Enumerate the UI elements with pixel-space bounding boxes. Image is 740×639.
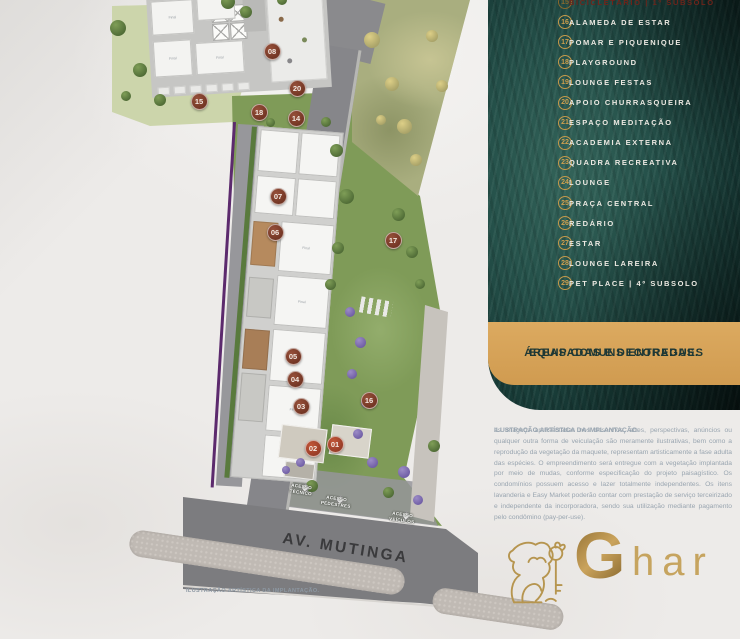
unit-footprint: Final [273,275,330,329]
flowering-tree [355,337,366,348]
legend-label: LOUNGE [569,178,611,187]
tree [332,242,344,254]
plan-marker-07: 07 [270,188,287,205]
tree [240,6,252,18]
logo-letters-har: har [632,542,714,582]
tree [133,63,147,77]
plan-marker-02: 02 [305,440,322,457]
amenity-patch [242,329,270,371]
plan-marker-18: 18 [251,104,268,121]
legend-item-24: 24LOUNGE [488,173,740,193]
unit-footprint [295,178,337,219]
legend-label: REDÁRIO [569,219,615,228]
amenity-patch [238,372,267,422]
flowering-tree [367,457,378,468]
legend-item-18: 18PLAYGROUND [488,52,740,72]
tree [383,487,394,498]
legend-label: ALAMEDA DE ESTAR [569,18,671,27]
logo-letter-g: G [574,522,625,588]
balcony [174,86,186,95]
legend-item-16: 16ALAMEDA DE ESTAR [488,12,740,32]
furniture-dot [302,37,307,42]
plan-marker-16: 16 [361,392,378,409]
legend-label: PLAYGROUND [569,58,638,67]
legend-label: LOUNGE FESTAS [569,78,653,87]
tree [364,32,380,48]
amenity-patch [246,277,274,319]
legend-label: PRAÇA CENTRAL [569,199,654,208]
legend-item-26: 26REDÁRIO [488,213,740,233]
legend-item-20: 20APOIO CHURRASQUEIRA [488,93,740,113]
unit-footprint: Final [278,221,335,275]
plan-marker-06: 06 [267,224,284,241]
amenity-floor [266,0,327,82]
balcony [221,83,233,92]
tree [110,20,126,36]
plan-marker-03: 03 [293,398,310,415]
tree [436,80,448,92]
legend-item-29: 29PET PLACE | 4º SUBSOLO [488,273,740,293]
furniture-dot [287,58,292,63]
flowering-tree [347,369,357,379]
flowering-tree [296,458,305,467]
plan-marker-08: 08 [264,43,281,60]
tree [392,208,405,221]
balcony [206,84,218,93]
legend-item-23: 23QUADRA RECREATIVA [488,153,740,173]
flowering-tree [353,429,363,439]
legend-label: ESPAÇO MEDITAÇÃO [569,118,673,127]
legend-label: APOIO CHURRASQUEIRA [569,98,692,107]
tree [426,30,438,42]
flowering-tree [282,466,290,474]
tree [266,118,275,127]
tree [339,189,354,204]
legend-item-22: 22ACADEMIA EXTERNA [488,133,740,153]
legend-label: PET PLACE | 4º SUBSOLO [569,279,699,288]
tree [121,91,131,101]
legend-label: BICICLETÁRIO | 1º SUBSOLO [569,0,715,7]
plan-marker-20: 20 [289,80,306,97]
tree [376,115,386,125]
legend-item-17: 17POMAR E PIQUENIQUE [488,32,740,52]
disclaimer-body: as imagens apresentadas nos desenhos, ar… [494,426,732,524]
tree [410,154,422,166]
legend-item-19: 19LOUNGE FESTAS [488,72,740,92]
balcony [237,82,249,91]
elevator-cell [212,23,230,41]
legend-item-25: 25PRAÇA CENTRAL [488,193,740,213]
legend-label: QUADRA RECREATIVA [569,158,679,167]
flowering-tree [413,495,423,505]
tree [154,94,166,106]
implantation-poster: FinalFinalFinalFinalFinal FinalFinalFina… [0,0,740,639]
tree [385,77,399,91]
legend-item-28: 28LOUNGE LAREIRA [488,253,740,273]
legend-label: ESTAR [569,239,602,248]
tree [321,117,331,127]
plan-marker-17: 17 [385,232,402,249]
legend-label: POMAR E PIQUENIQUE [569,38,682,47]
flowering-tree [398,466,410,478]
tree [397,119,412,134]
delivery-banner: ÁREAS COMUNS ENTREGUES EQUIPADAS E DECOR… [488,322,740,385]
brand-logo: G har [498,520,728,630]
plan-marker-04: 04 [287,371,304,388]
tree [406,246,418,258]
plan-marker-14: 14 [288,110,305,127]
tree [415,279,425,289]
plan-caption: ILUSTRAÇÃO ARTÍSTICA DA IMPLANTAÇÃO. [186,588,319,594]
tree [330,144,343,157]
plan-marker-05: 05 [285,348,302,365]
unit-footprint: Final [150,0,194,36]
tree [325,279,336,290]
legend-item-21: 21ESPAÇO MEDITAÇÃO [488,113,740,133]
unit-footprint [257,129,299,174]
legend-item-15: 15BICICLETÁRIO | 1º SUBSOLO [488,0,740,12]
flowering-tree [345,307,355,317]
banner-line2: EQUIPADAS E DECORADAS. [529,345,699,362]
unit-footprint: Final [195,40,245,75]
legend-item-27: 27ESTAR [488,233,740,253]
legend-label: LOUNGE LAREIRA [569,259,659,268]
plan-marker-01: 01 [327,436,344,453]
tree [428,440,440,452]
furniture-dot [279,17,284,22]
plan-marker-15: 15 [191,93,208,110]
legend-label: ACADEMIA EXTERNA [569,138,673,147]
unit-footprint: Final [153,39,193,77]
lion-with-key-icon [504,536,576,614]
